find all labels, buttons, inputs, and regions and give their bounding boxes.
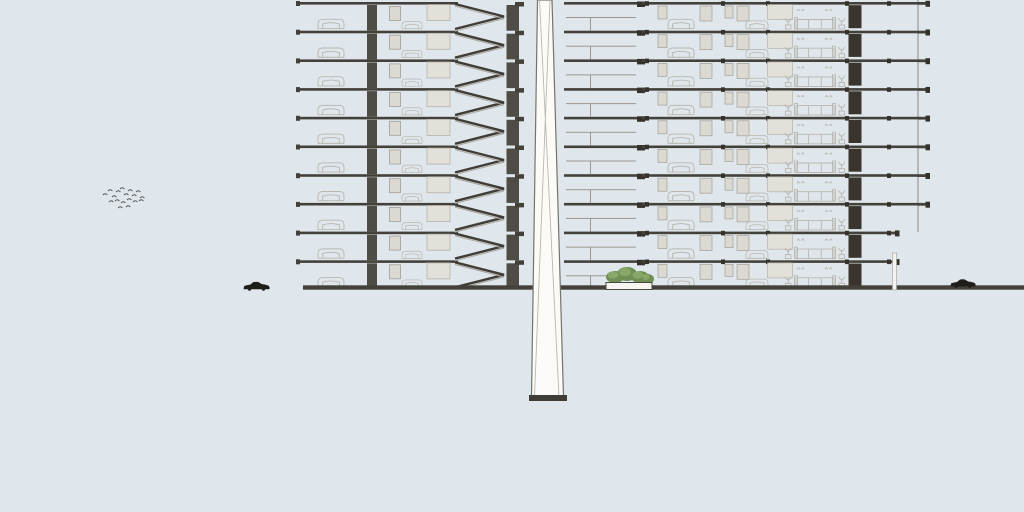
wall-panel [768, 148, 793, 163]
bird-icon [126, 206, 130, 207]
door-grey [737, 236, 749, 251]
slab-nub [845, 59, 849, 64]
core-mid-line [566, 189, 636, 190]
door-grey [737, 150, 749, 165]
core-divider [590, 247, 591, 261]
architectural-section-illustration [0, 0, 1024, 512]
floor-slab [564, 174, 642, 177]
slab-nub [887, 202, 891, 207]
armchair-sketch [668, 48, 694, 57]
wall-panel [427, 263, 450, 279]
slab-nub [887, 59, 891, 64]
slab-nub [721, 59, 725, 64]
core-divider [590, 46, 591, 60]
core-divider [590, 218, 591, 232]
door-grey [390, 265, 401, 279]
wall-panel [427, 234, 450, 250]
armchair-sketch [746, 21, 768, 29]
floor-slab [564, 31, 642, 34]
stair-shaft-wall [507, 91, 520, 117]
wall-panel [768, 119, 793, 134]
armchair-sketch [402, 194, 422, 201]
balcony-nub [926, 144, 931, 150]
balcony-tick [296, 116, 300, 121]
slab-tick [515, 232, 524, 237]
duct-shaft [367, 177, 377, 203]
wall-panel [427, 148, 450, 164]
dark-door [849, 235, 862, 258]
slab-tick [515, 88, 524, 93]
rail-post [893, 253, 897, 290]
balcony-tick [296, 202, 300, 207]
slab-nub [721, 260, 725, 265]
wall-panel [768, 263, 793, 278]
door-grey [725, 6, 733, 18]
planter-bush-highlight [608, 271, 619, 278]
door-grey [700, 121, 712, 136]
stair-shaft-wall [507, 62, 520, 88]
door-grey [737, 207, 749, 222]
slab-nub [887, 231, 891, 236]
armchair-sketch [668, 77, 694, 86]
bird-icon [120, 188, 124, 189]
balcony-nub [926, 202, 931, 208]
planter-bush-highlight [642, 274, 649, 280]
slab-nub [645, 30, 649, 35]
planter-box [606, 283, 652, 290]
sofa-plants-sketch [785, 210, 845, 230]
floor-slab [642, 88, 918, 91]
door-grey [658, 236, 667, 249]
door-grey [658, 63, 667, 76]
armchair-sketch [746, 193, 768, 201]
slab-tick [515, 260, 524, 265]
wall-panel [427, 33, 450, 49]
bird-icon [124, 194, 128, 195]
door-grey [390, 64, 401, 78]
wall-panel [768, 177, 793, 192]
slab-tick [515, 117, 524, 122]
door-grey [390, 35, 401, 49]
armchair-sketch [746, 107, 768, 115]
door-grey [658, 264, 667, 277]
core-divider [590, 17, 591, 31]
duct-shaft [367, 263, 377, 289]
armchair-sketch [318, 105, 344, 114]
door-grey [658, 150, 667, 163]
slab-nub [845, 231, 849, 236]
balcony-tick [296, 259, 300, 264]
tower-section [296, 0, 1024, 290]
slab-nub [645, 59, 649, 64]
stair-shaft-wall [507, 149, 520, 175]
bird-icon [139, 200, 143, 201]
section-drawing [0, 0, 1024, 512]
door-grey [737, 35, 749, 50]
slab-nub [645, 145, 649, 150]
door-grey [725, 121, 733, 133]
duct-shaft [367, 235, 377, 261]
stair-shaft-wall [507, 34, 520, 60]
armchair-sketch [318, 48, 344, 57]
core-mid-line [566, 161, 636, 162]
floor-slab [564, 59, 642, 62]
armchair-sketch [668, 19, 694, 28]
door-grey [390, 179, 401, 193]
planter [606, 267, 654, 290]
core-mid-line [566, 74, 636, 75]
sofa-plants-sketch [785, 95, 845, 115]
armchair-sketch [402, 22, 422, 29]
door-grey [700, 207, 712, 222]
door-grey [725, 63, 733, 75]
armchair-sketch [402, 223, 422, 230]
duct-shaft [367, 5, 377, 31]
floor-slab [564, 2, 642, 5]
door-grey [725, 150, 733, 162]
duct-shaft [367, 120, 377, 146]
stair-shaft-wall [507, 263, 520, 289]
bird-icon [103, 194, 107, 195]
armchair-sketch [746, 78, 768, 86]
slab-nub [887, 173, 891, 178]
dark-door [849, 177, 862, 200]
slab-nub [721, 202, 725, 207]
armchair-sketch [746, 50, 768, 58]
right-facade-line [918, 0, 919, 232]
balcony-tick [296, 231, 300, 236]
slab-nub [845, 30, 849, 35]
core-mid-line [566, 218, 636, 219]
dark-door [849, 206, 862, 229]
bird-icon [118, 207, 122, 208]
door-grey [725, 236, 733, 248]
duct-shaft [367, 149, 377, 175]
balcony-tick [296, 58, 300, 63]
dark-door [849, 264, 862, 287]
door-grey [725, 178, 733, 190]
armchair-sketch [746, 164, 768, 172]
door-grey [725, 35, 733, 47]
slab-nub [645, 231, 649, 236]
floor-slab [642, 174, 918, 177]
floor-slab [642, 117, 918, 120]
slab-nub [645, 87, 649, 92]
armchair-sketch [318, 134, 344, 143]
bird-flock [103, 188, 144, 208]
armchair-sketch [746, 250, 768, 258]
slab-tick [515, 2, 524, 7]
dark-door [849, 63, 862, 86]
wall-panel [768, 91, 793, 106]
floor-slab [564, 260, 642, 263]
armchair-sketch [668, 163, 694, 172]
wall-panel [427, 5, 450, 21]
slab-nub [845, 260, 849, 265]
slab-nub [887, 1, 891, 6]
duct-shaft [367, 62, 377, 88]
bird-icon [133, 201, 137, 202]
balcony-tick [296, 87, 300, 92]
floor-slab [642, 260, 888, 263]
sofa-plants-sketch [785, 268, 845, 288]
bird-icon [116, 191, 120, 192]
slab-nub [645, 202, 649, 207]
armchair-sketch [318, 163, 344, 172]
balcony-nub [895, 230, 900, 236]
floor-slab [564, 232, 642, 235]
bird-icon [108, 190, 112, 191]
stair-shaft-wall [507, 235, 520, 261]
wall-panel [768, 5, 793, 20]
door-grey [700, 264, 712, 279]
planter-bush-highlight [633, 271, 644, 278]
door-grey [737, 121, 749, 136]
slab-nub [887, 260, 891, 265]
door-grey [658, 121, 667, 134]
door-grey [737, 63, 749, 78]
slab-nub [645, 1, 649, 6]
armchair-sketch [668, 249, 694, 258]
bird-icon [115, 200, 119, 201]
door-grey [725, 92, 733, 104]
mast-foundation [529, 395, 567, 401]
car-icon [244, 282, 270, 291]
door-grey [700, 6, 712, 21]
slab-nub [645, 260, 649, 265]
core-mid-line [566, 132, 636, 133]
slab-tick [515, 174, 524, 179]
bird-icon [136, 191, 140, 192]
wall-panel [427, 206, 450, 222]
balcony-nub [926, 87, 931, 93]
planter-bush-highlight [619, 268, 631, 276]
door-grey [737, 92, 749, 107]
core-divider [590, 132, 591, 146]
stair-shaft-wall [507, 5, 520, 31]
slab-nub [845, 202, 849, 207]
balcony-tick [296, 145, 300, 150]
armchair-sketch [746, 136, 768, 144]
core-mid-line [566, 247, 636, 248]
armchair-sketch [746, 222, 768, 230]
door-grey [737, 264, 749, 279]
sofa-plants-sketch [785, 67, 845, 87]
armchair-sketch [668, 105, 694, 114]
central-mast [529, 0, 567, 401]
slab-nub [845, 116, 849, 121]
floor-slab [642, 146, 918, 149]
armchair-sketch [318, 191, 344, 200]
floor-slab [564, 203, 642, 206]
door-grey [390, 7, 401, 21]
door-grey [658, 178, 667, 191]
door-grey [390, 93, 401, 107]
bird-icon [132, 195, 136, 196]
slab-nub [887, 30, 891, 35]
slab-nub [645, 173, 649, 178]
bird-icon [140, 197, 144, 198]
dark-door [849, 149, 862, 172]
wall-panel [427, 119, 450, 135]
stair-shaft-wall [507, 206, 520, 232]
slab-nub [845, 1, 849, 6]
balcony-nub [926, 30, 931, 36]
floor-slab [564, 88, 642, 91]
stair-shaft-wall [507, 177, 520, 203]
slab-nub [845, 145, 849, 150]
wall-panel [427, 177, 450, 193]
armchair-sketch [318, 220, 344, 229]
wall-panel [768, 33, 793, 48]
bird-icon [109, 201, 113, 202]
balcony-tick [296, 173, 300, 178]
balcony-nub [926, 58, 931, 64]
slab-nub [887, 116, 891, 121]
bird-icon [121, 202, 125, 203]
armchair-sketch [668, 191, 694, 200]
armchair-sketch [402, 136, 422, 143]
armchair-sketch [402, 251, 422, 258]
floor-slab [564, 117, 642, 120]
door-grey [390, 236, 401, 250]
dark-door [849, 91, 862, 114]
sofa-plants-sketch [785, 239, 845, 259]
door-grey [700, 92, 712, 107]
bird-icon [127, 199, 131, 200]
core-mid-line [566, 17, 636, 18]
door-grey [390, 207, 401, 221]
door-grey [658, 92, 667, 105]
floor-slab [642, 203, 918, 206]
core-divider [590, 103, 591, 117]
core-mid-line [566, 46, 636, 47]
slab-nub [887, 87, 891, 92]
door-grey [737, 6, 749, 21]
balcony-tick [296, 30, 300, 35]
slab-nub [645, 116, 649, 121]
slab-nub [721, 145, 725, 150]
sofa-plants-sketch [785, 153, 845, 173]
slab-nub [845, 87, 849, 92]
sofa-plants-sketch [785, 38, 845, 58]
sofa-plants-sketch [785, 9, 845, 29]
slab-tick [515, 146, 524, 151]
sofa-plants-sketch [785, 181, 845, 201]
floor-slab [642, 2, 918, 5]
floor-slab [642, 232, 888, 235]
slab-nub [721, 30, 725, 35]
dark-door [849, 5, 862, 28]
slab-nub [845, 173, 849, 178]
bird-icon [128, 190, 132, 191]
wall-panel [427, 91, 450, 107]
door-grey [658, 207, 667, 220]
floor-slab [564, 146, 642, 149]
slab-tick [515, 59, 524, 64]
sofa-plants-sketch [785, 124, 845, 144]
door-grey [658, 6, 667, 19]
ground-floor-slab [303, 285, 1024, 289]
door-grey [737, 178, 749, 193]
door-grey [390, 121, 401, 135]
duct-shaft [367, 91, 377, 117]
door-grey [390, 150, 401, 164]
floor-slab [642, 31, 918, 34]
balcony-nub [926, 173, 931, 179]
slab-tick [515, 31, 524, 36]
core-divider [590, 189, 591, 203]
armchair-sketch [318, 249, 344, 258]
slab-nub [887, 145, 891, 150]
door-grey [725, 207, 733, 219]
armchair-sketch [318, 19, 344, 28]
slab-tick [515, 203, 524, 208]
slab-nub [721, 116, 725, 121]
door-grey [658, 35, 667, 48]
armchair-sketch [402, 50, 422, 57]
balcony-tick [296, 1, 300, 6]
door-grey [700, 178, 712, 193]
floor-slab [642, 59, 918, 62]
duct-shaft [367, 34, 377, 60]
armchair-sketch [318, 77, 344, 86]
armchair-sketch [402, 165, 422, 172]
wall-panel [768, 62, 793, 77]
armchair-sketch [668, 134, 694, 143]
core-divider [590, 74, 591, 88]
core-mid-line [566, 103, 636, 104]
door-grey [725, 264, 733, 276]
armchair-sketch [402, 79, 422, 86]
door-grey [700, 35, 712, 50]
slab-nub [721, 173, 725, 178]
core-divider [590, 161, 591, 175]
dark-door [849, 120, 862, 143]
wall-panel [768, 234, 793, 249]
slab-nub [721, 87, 725, 92]
door-grey [700, 150, 712, 165]
duct-shaft [367, 206, 377, 232]
slab-nub [721, 231, 725, 236]
stair-shaft-wall [507, 120, 520, 146]
dark-door [849, 34, 862, 57]
balcony-nub [926, 116, 931, 122]
wall-panel [768, 206, 793, 221]
armchair-sketch [668, 220, 694, 229]
armchair-sketch [402, 108, 422, 115]
bird-icon [112, 196, 116, 197]
slab-nub [721, 1, 725, 6]
balcony-nub [926, 1, 931, 7]
door-grey [700, 236, 712, 251]
door-grey [700, 63, 712, 78]
wall-panel [427, 62, 450, 78]
